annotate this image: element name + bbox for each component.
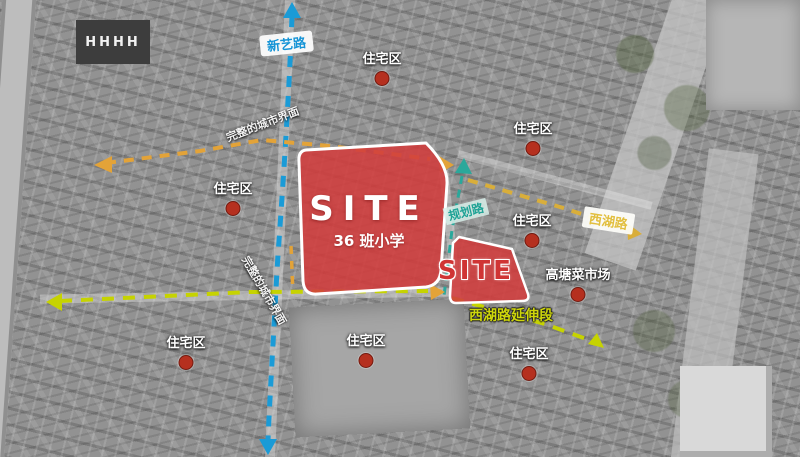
residential-area-marker: 住宅区 [513,118,552,156]
residential-area-label: 住宅区 [513,118,552,137]
residential-area-marker: 住宅区 [213,178,252,216]
arrow-up-icon [283,2,301,18]
location-dot [358,353,373,368]
location-dot [178,355,193,370]
site-main-title: SITE [306,189,432,229]
residential-area-label: 住宅区 [213,178,252,197]
residential-area-marker: 住宅区 [512,210,551,248]
residential-area-label: 住宅区 [166,332,205,351]
residential-area-marker: 住宅区 [362,48,401,86]
location-dot [521,366,536,381]
location-dot [225,201,240,216]
market-label: 高塘菜市场 [545,264,610,283]
xinyi-road-dashed-line [268,16,292,440]
xihu-extension-label: 西湖路延伸段 [469,305,553,325]
residential-area-label: 住宅区 [362,48,401,67]
site-main-subtitle: 36 班小学 [306,230,432,251]
arrow-southeast-icon [588,333,604,348]
site-secondary-title: SITE [438,256,514,286]
residential-area-label: 住宅区 [512,210,551,229]
urban-interface-boundary-west [291,246,293,294]
residential-area-marker: 住宅区 [346,330,385,368]
market-marker: 高塘菜市场 [545,264,610,302]
residential-area-marker: 住宅区 [509,343,548,381]
arrow-left-icon [94,156,112,173]
location-dot [570,287,585,302]
residential-area-label: 住宅区 [509,343,548,362]
location-dot [525,141,540,156]
location-dot [524,233,539,248]
arrow-down-icon [259,439,277,455]
arrow-left-icon [46,293,62,311]
residential-area-marker: 住宅区 [166,332,205,370]
site-analysis-map: HHHH 新艺路 完整的城市界面 完整的城市界面 规划路 西湖路 西湖路延伸段 … [0,0,800,457]
residential-area-label: 住宅区 [346,330,385,349]
location-dot [374,71,389,86]
arrow-up-icon [455,158,472,174]
